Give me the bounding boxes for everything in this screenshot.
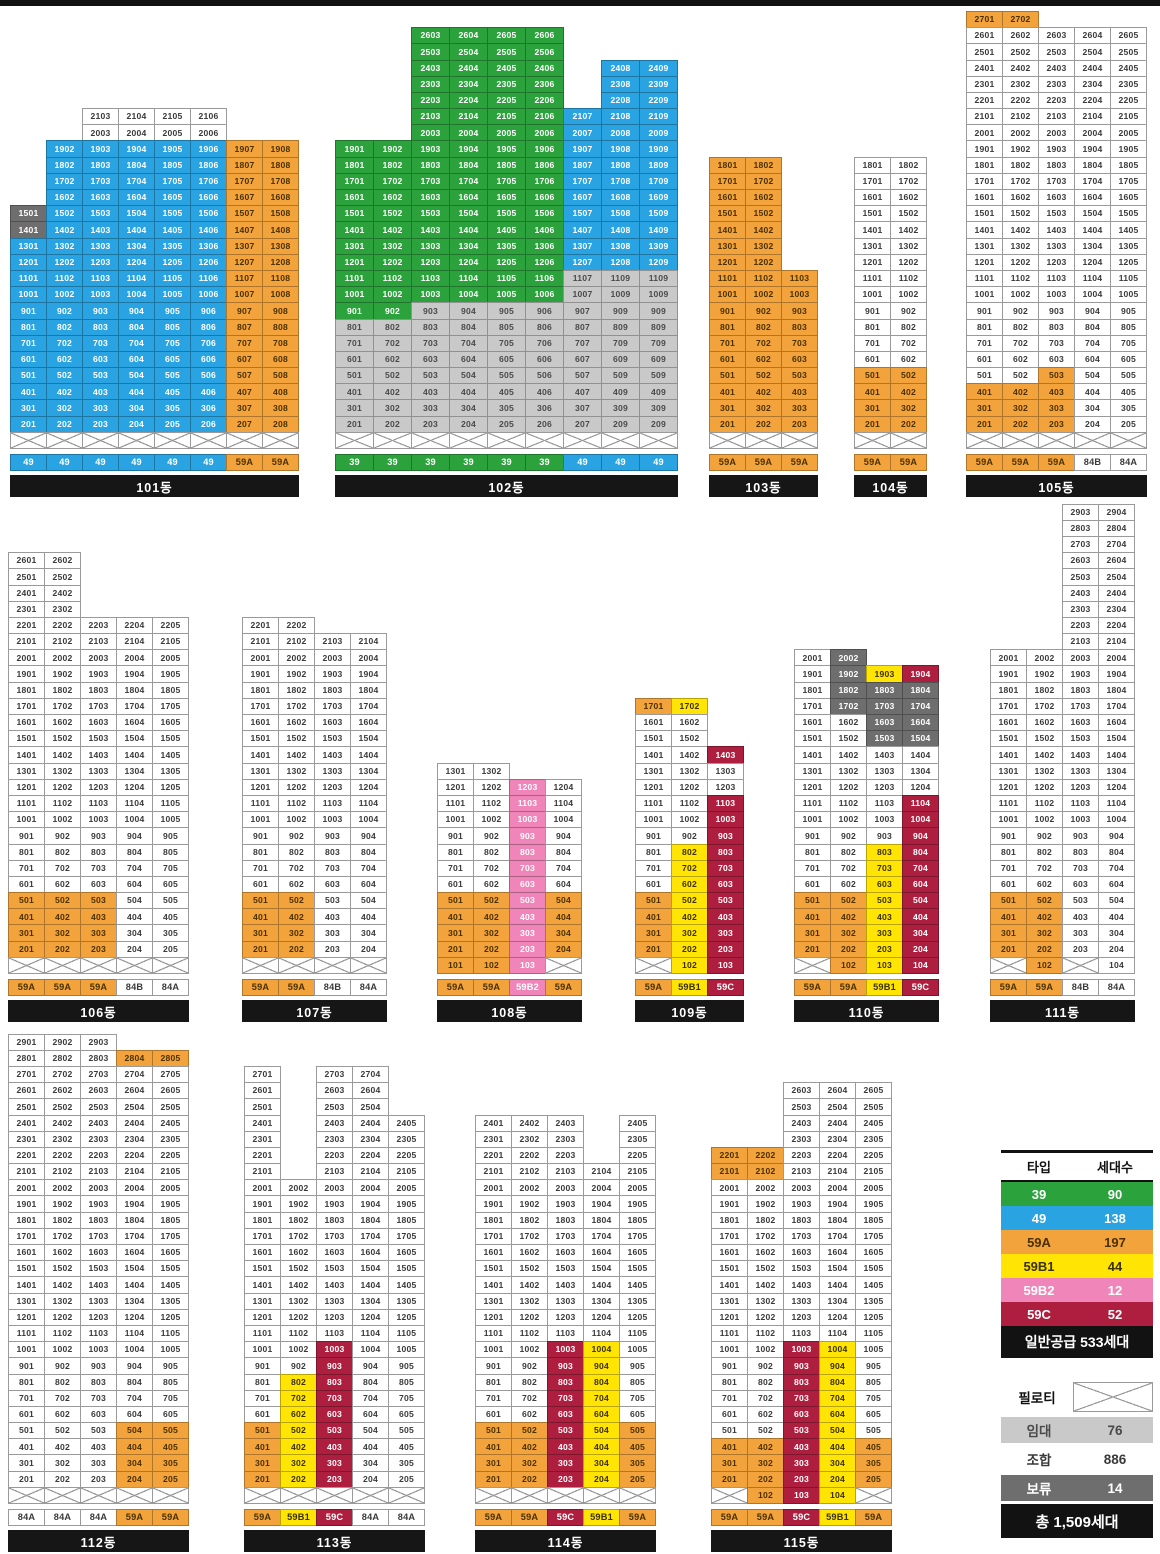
unit-cell: 1005	[152, 1341, 189, 1358]
unit-cell: 1005	[154, 286, 191, 303]
unit-cell: 1805	[154, 157, 191, 174]
unit-cell: 2101	[8, 1163, 45, 1180]
unit-cell: 1402	[46, 221, 83, 238]
type-cell: 49	[154, 454, 191, 471]
unit-cell: 703	[1062, 860, 1099, 877]
unit-column-1: 2201210120011901180117011601150114011301…	[242, 618, 279, 974]
unit-cell: 602	[280, 1406, 317, 1423]
unit-cell: 1301	[242, 763, 279, 780]
unit-cell: 2503	[316, 1098, 353, 1115]
unit-cell: 2003	[80, 649, 117, 666]
unit-cell: 1902	[1026, 665, 1063, 682]
unit-cell: 1705	[855, 1228, 892, 1245]
unit-cell: 2205	[388, 1147, 425, 1164]
building-name-bar: 106동	[8, 1000, 189, 1022]
unit-cell: 2105	[1110, 108, 1147, 125]
unit-cell: 1204	[1098, 779, 1135, 796]
unit-cell: 1506	[525, 205, 564, 222]
unit-cell: 803	[547, 1374, 584, 1391]
unit-cell: 1302	[1026, 763, 1063, 780]
unit-cell: 503	[411, 367, 450, 384]
building-name-bar: 113동	[244, 1530, 425, 1552]
unit-cell: 403	[783, 1438, 820, 1455]
unit-cell: 1102	[747, 1325, 784, 1342]
unit-cell: 304	[116, 924, 153, 941]
unit-cell: 703	[82, 335, 119, 352]
unit-column-1: 2201210120011901180117011601150114011301…	[711, 1148, 748, 1504]
unit-cell: 1704	[118, 173, 155, 190]
unit-cell: 1601	[635, 714, 672, 731]
unit-cell: 1804	[352, 1212, 389, 1229]
unit-cell: 2203	[411, 92, 450, 109]
unit-cell: 2104	[449, 108, 488, 125]
unit-cell: 203	[509, 941, 546, 958]
unit-cell: 701	[335, 335, 374, 352]
unit-cell: 1703	[783, 1228, 820, 1245]
unit-cell: 604	[1098, 876, 1135, 893]
unit-cell: 2208	[601, 92, 640, 109]
unit-cell: 1902	[46, 140, 83, 157]
unit-cell: 1404	[116, 746, 153, 763]
unit-column-6: 2106200619061806170616061506140613061206…	[190, 109, 227, 449]
unit-cell: 1103	[509, 795, 546, 812]
unit-cell: 2402	[511, 1115, 548, 1132]
unit-cell: 1402	[44, 1276, 81, 1293]
legend: 타입 세대수 39904913859A19759B14459B21259C52 …	[1001, 1150, 1153, 1538]
unit-column-1: 1801170116011501140113011201110110019018…	[854, 158, 891, 449]
type-cell: 59C	[707, 979, 744, 996]
unit-cell: 902	[1026, 827, 1063, 844]
unit-column-1: 1701160115011401130112011101100190180170…	[635, 699, 672, 974]
unit-cell: 302	[44, 1454, 81, 1471]
unit-cell: 1503	[411, 205, 450, 222]
piloti-cell	[262, 432, 299, 449]
unit-cell: 101	[437, 957, 474, 974]
unit-cell: 702	[278, 860, 315, 877]
unit-cell: 504	[902, 892, 939, 909]
unit-cell: 1502	[373, 205, 412, 222]
unit-cell: 2204	[1098, 617, 1135, 634]
unit-cell: 404	[352, 1438, 389, 1455]
unit-column-3: 2903280327032603250324032303220321032003…	[1062, 505, 1099, 974]
unit-cell: 903	[411, 302, 450, 319]
unit-cell: 404	[118, 383, 155, 400]
piloti-cell	[1074, 432, 1111, 449]
unit-cell: 2103	[82, 108, 119, 125]
legend-type-label: 59A	[1001, 1230, 1077, 1254]
unit-cell: 1803	[783, 1212, 820, 1229]
unit-cell: 2303	[1062, 601, 1099, 618]
unit-cell: 2505	[487, 43, 526, 60]
type-cell: 39	[373, 454, 412, 471]
unit-cell: 702	[890, 335, 927, 352]
unit-cell: 1503	[1062, 730, 1099, 747]
unit-column-2: 1302120211021002902802702602502402302202…	[473, 764, 510, 974]
unit-cell: 203	[707, 941, 744, 958]
unit-cell: 205	[388, 1471, 425, 1488]
unit-cell: 1207	[563, 254, 602, 271]
unit-cell: 1302	[280, 1293, 317, 1310]
unit-cell: 1204	[1074, 254, 1111, 271]
unit-cell: 705	[855, 1390, 892, 1407]
unit-column-1: 2001190118011701160115011401130112011101…	[794, 650, 831, 974]
unit-cell: 605	[388, 1406, 425, 1423]
unit-cell: 1203	[314, 779, 351, 796]
unit-cell: 1404	[902, 746, 939, 763]
unit-cell: 2005	[152, 649, 189, 666]
unit-cell: 1103	[1062, 795, 1099, 812]
unit-cell: 201	[8, 1471, 45, 1488]
unit-cell: 1903	[316, 1195, 353, 1212]
unit-cell: 602	[511, 1406, 548, 1423]
unit-column-2: 1702160215021402130212021102100290280270…	[671, 699, 708, 974]
unit-cell: 903	[80, 827, 117, 844]
unit-cell: 1101	[242, 795, 279, 812]
unit-cell: 2104	[116, 633, 153, 650]
unit-cell: 1202	[373, 254, 412, 271]
unit-cell: 1301	[635, 763, 672, 780]
unit-cell: 603	[509, 876, 546, 893]
unit-cell: 404	[819, 1438, 856, 1455]
unit-cell: 606	[525, 351, 564, 368]
building-row-2: 2601250124012301220121012001190118011701…	[0, 505, 1135, 1022]
unit-cell: 1904	[1098, 665, 1135, 682]
unit-cell: 1203	[509, 779, 546, 796]
unit-cell: 1905	[619, 1195, 656, 1212]
unit-cell: 802	[44, 1374, 81, 1391]
type-cell: 49	[190, 454, 227, 471]
unit-cell: 1903	[783, 1195, 820, 1212]
unit-cell: 1503	[1038, 205, 1075, 222]
unit-cell: 1701	[711, 1228, 748, 1245]
unit-cell: 905	[152, 827, 189, 844]
unit-cell: 1904	[449, 140, 488, 157]
unit-cell: 1104	[1098, 795, 1135, 812]
unit-cell: 2101	[242, 633, 279, 650]
unit-cell: 2704	[116, 1066, 153, 1083]
unit-cell: 2003	[783, 1179, 820, 1196]
unit-cell: 1101	[635, 795, 672, 812]
unit-cell: 1301	[854, 238, 891, 255]
unit-cell: 1803	[547, 1212, 584, 1229]
unit-cell: 404	[902, 908, 939, 925]
unit-cell: 1203	[411, 254, 450, 271]
unit-cell: 1604	[583, 1244, 620, 1261]
unit-column-1: 2701260125012401230122012101200119011801…	[966, 12, 1003, 449]
unit-cell: 509	[601, 367, 640, 384]
unit-cell: 1701	[990, 698, 1027, 715]
unit-cell: 2102	[44, 1163, 81, 1180]
unit-cell: 201	[709, 416, 746, 433]
unit-cell: 1509	[639, 205, 678, 222]
unit-cell: 904	[583, 1357, 620, 1374]
unit-cell: 1508	[262, 205, 299, 222]
unit-cell: 1802	[44, 1212, 81, 1229]
building-name-bar: 115동	[711, 1530, 892, 1552]
unit-cell: 805	[855, 1374, 892, 1391]
unit-cell: 604	[819, 1406, 856, 1423]
unit-cell: 901	[10, 302, 47, 319]
unit-cell: 2201	[8, 617, 45, 634]
type-cell: 59A	[116, 1509, 153, 1526]
building-105: 2701260125012401230122012101200119011801…	[966, 12, 1147, 497]
unit-column-9: 2409230922092109200919091809170916091509…	[639, 61, 678, 450]
building-row-1: 1501140113011201110110019018017016015014…	[0, 0, 1147, 497]
unit-cell: 903	[1062, 827, 1099, 844]
unit-cell: 602	[830, 876, 867, 893]
unit-cell: 1504	[116, 1260, 153, 1277]
unit-cell: 201	[711, 1471, 748, 1488]
unit-cell: 402	[1002, 383, 1039, 400]
unit-cell: 1104	[545, 795, 582, 812]
unit-cell: 804	[1098, 844, 1135, 861]
unit-cell: 303	[411, 399, 450, 416]
unit-cell: 209	[601, 416, 640, 433]
unit-cell: 602	[373, 351, 412, 368]
unit-column-4: 2804270426042504240423042204210420041904…	[116, 1051, 153, 1504]
unit-cell: 104	[902, 957, 939, 974]
unit-cell: 1503	[80, 1260, 117, 1277]
unit-cell: 2605	[487, 27, 526, 44]
unit-cell: 704	[583, 1390, 620, 1407]
unit-cell: 2302	[511, 1131, 548, 1148]
unit-cell: 1803	[866, 682, 903, 699]
unit-cell: 1401	[990, 746, 1027, 763]
unit-cell: 301	[335, 399, 374, 416]
unit-cell: 1704	[1074, 173, 1111, 190]
unit-cell: 605	[487, 351, 526, 368]
unit-cell: 2409	[639, 60, 678, 77]
unit-cell: 1003	[783, 1341, 820, 1358]
unit-cell: 805	[619, 1374, 656, 1391]
unit-cell: 1206	[190, 254, 227, 271]
unit-cell: 1001	[242, 811, 279, 828]
building-name-bar: 107동	[242, 1000, 387, 1022]
unit-cell: 1002	[373, 286, 412, 303]
unit-cell: 1603	[80, 1244, 117, 1261]
unit-cell: 1401	[10, 221, 47, 238]
unit-cell: 404	[449, 383, 488, 400]
unit-cell: 804	[449, 319, 488, 336]
unit-cell: 2503	[411, 43, 450, 60]
legend-type-count: 197	[1077, 1230, 1153, 1254]
unit-cell: 1605	[154, 189, 191, 206]
unit-cell: 1002	[1026, 811, 1063, 828]
unit-cell: 502	[1002, 367, 1039, 384]
building-name-bar: 114동	[475, 1530, 656, 1552]
unit-cell: 1903	[547, 1195, 584, 1212]
unit-cell: 501	[711, 1422, 748, 1439]
unit-cell: 903	[547, 1357, 584, 1374]
unit-cell: 305	[388, 1454, 425, 1471]
unit-cell: 1804	[1098, 682, 1135, 699]
unit-cell: 1304	[350, 763, 387, 780]
unit-cell: 1202	[280, 1309, 317, 1326]
unit-cell: 202	[511, 1471, 548, 1488]
unit-cell: 501	[966, 367, 1003, 384]
type-row: 59A59A59C59B159A	[475, 1509, 656, 1526]
unit-cell: 2002	[1026, 649, 1063, 666]
unit-cell: 1601	[711, 1244, 748, 1261]
unit-cell: 1604	[118, 189, 155, 206]
unit-cell: 201	[635, 941, 672, 958]
legend-status-count: 76	[1077, 1417, 1153, 1443]
unit-cell: 1205	[1110, 254, 1147, 271]
unit-cell: 2405	[855, 1115, 892, 1132]
unit-cell: 1201	[244, 1309, 281, 1326]
unit-cell: 1602	[1026, 714, 1063, 731]
unit-cell: 1801	[8, 682, 45, 699]
unit-cell: 1603	[411, 189, 450, 206]
unit-cell: 1301	[8, 763, 45, 780]
unit-cell: 2101	[475, 1163, 512, 1180]
unit-cell: 1803	[82, 157, 119, 174]
unit-cell: 501	[335, 367, 374, 384]
unit-cell: 902	[745, 302, 782, 319]
unit-cell: 1901	[711, 1195, 748, 1212]
unit-cell: 1904	[116, 665, 153, 682]
unit-cell: 904	[350, 827, 387, 844]
unit-cell: 1404	[118, 221, 155, 238]
unit-cell: 402	[473, 908, 510, 925]
unit-cell: 302	[511, 1454, 548, 1471]
unit-grid: 2201210120011901180117011601150114011301…	[242, 618, 387, 974]
piloti-cell	[487, 432, 526, 449]
unit-cell: 203	[547, 1471, 584, 1488]
unit-cell: 1002	[44, 811, 81, 828]
unit-cell: 2602	[44, 1082, 81, 1099]
unit-cell: 2007	[563, 124, 602, 141]
unit-cell: 605	[154, 351, 191, 368]
unit-cell: 2602	[44, 552, 81, 569]
unit-cell: 1605	[388, 1244, 425, 1261]
unit-cell: 1302	[1002, 238, 1039, 255]
unit-cell: 1802	[747, 1212, 784, 1229]
unit-cell: 205	[152, 1471, 189, 1488]
unit-cell: 2605	[152, 1082, 189, 1099]
unit-cell: 2205	[1110, 92, 1147, 109]
unit-cell: 203	[316, 1471, 353, 1488]
unit-cell: 804	[583, 1374, 620, 1391]
unit-cell: 906	[190, 302, 227, 319]
unit-cell: 1601	[966, 189, 1003, 206]
unit-cell: 1702	[890, 173, 927, 190]
unit-cell: 1902	[511, 1195, 548, 1212]
unit-cell: 504	[583, 1422, 620, 1439]
building-name-bar: 111동	[990, 1000, 1135, 1022]
unit-cell: 304	[118, 399, 155, 416]
unit-cell: 1501	[709, 205, 746, 222]
unit-cell: 303	[509, 924, 546, 941]
unit-cell: 303	[314, 924, 351, 941]
unit-grid: 1701160115011401130112011101100190180170…	[635, 699, 744, 974]
unit-cell: 2203	[1038, 92, 1075, 109]
unit-cell: 404	[1074, 383, 1111, 400]
unit-cell: 1405	[1110, 221, 1147, 238]
legend-status-row-보류: 보류14	[1001, 1475, 1153, 1501]
unit-cell: 902	[830, 827, 867, 844]
unit-cell: 1701	[335, 173, 374, 190]
unit-cell: 1608	[601, 189, 640, 206]
unit-cell: 2402	[44, 1115, 81, 1132]
unit-cell: 104	[1098, 957, 1135, 974]
unit-cell: 2305	[487, 76, 526, 93]
unit-cell: 2209	[639, 92, 678, 109]
unit-cell: 2603	[1062, 552, 1099, 569]
type-cell: 84A	[352, 1509, 389, 1526]
legend-status-row-조합: 조합886	[1001, 1446, 1153, 1472]
unit-cell: 1007	[563, 286, 602, 303]
unit-cell: 1603	[82, 189, 119, 206]
unit-cell: 2102	[278, 633, 315, 650]
unit-cell: 502	[473, 892, 510, 909]
unit-cell: 1901	[794, 665, 831, 682]
unit-cell: 604	[350, 876, 387, 893]
unit-cell: 1405	[154, 221, 191, 238]
unit-cell: 305	[1110, 399, 1147, 416]
unit-cell: 2009	[639, 124, 678, 141]
unit-cell: 2404	[819, 1115, 856, 1132]
unit-cell: 2505	[1110, 43, 1147, 60]
unit-cell: 1802	[278, 682, 315, 699]
unit-cell: 1406	[190, 221, 227, 238]
unit-cell: 1201	[966, 254, 1003, 271]
unit-cell: 1704	[902, 698, 939, 715]
unit-cell: 402	[745, 383, 782, 400]
unit-cell: 1102	[473, 795, 510, 812]
type-cell: 59C	[316, 1509, 353, 1526]
unit-cell: 1601	[990, 714, 1027, 731]
unit-cell: 1201	[990, 779, 1027, 796]
unit-cell: 1702	[747, 1228, 784, 1245]
unit-cell: 504	[819, 1422, 856, 1439]
unit-cell: 1805	[388, 1212, 425, 1229]
unit-cell: 1002	[745, 286, 782, 303]
unit-cell: 1301	[794, 763, 831, 780]
type-row: 59A59A59A84B84A	[966, 454, 1147, 471]
unit-cell: 1208	[262, 254, 299, 271]
unit-cell: 503	[783, 1422, 820, 1439]
unit-cell: 604	[1074, 351, 1111, 368]
unit-cell: 1701	[966, 173, 1003, 190]
unit-cell: 2502	[44, 1098, 81, 1115]
legend-type-row-59B2: 59B212	[1001, 1278, 1153, 1302]
type-row: 84A84A84A59A59A	[8, 1509, 189, 1526]
piloti-cell	[278, 957, 315, 974]
unit-cell: 1202	[1002, 254, 1039, 271]
unit-cell: 2304	[352, 1131, 389, 1148]
unit-cell: 1304	[1098, 763, 1135, 780]
piloti-cell	[449, 432, 488, 449]
unit-cell: 503	[866, 892, 903, 909]
unit-cell: 1305	[152, 763, 189, 780]
piloti-cell	[854, 432, 891, 449]
unit-cell: 401	[244, 1438, 281, 1455]
unit-cell: 1001	[854, 286, 891, 303]
unit-cell: 1009	[639, 286, 678, 303]
unit-cell: 1801	[335, 157, 374, 174]
unit-cell: 806	[190, 319, 227, 336]
type-cell: 39	[335, 454, 374, 471]
unit-column-7: 1907180717071607150714071307120711071007…	[226, 141, 263, 449]
unit-cell: 2302	[1002, 76, 1039, 93]
unit-cell: 803	[781, 319, 818, 336]
unit-cell: 2004	[118, 124, 155, 141]
unit-cell: 1401	[854, 221, 891, 238]
unit-cell: 2803	[1062, 520, 1099, 537]
unit-cell: 2202	[278, 617, 315, 634]
unit-cell: 1903	[80, 665, 117, 682]
